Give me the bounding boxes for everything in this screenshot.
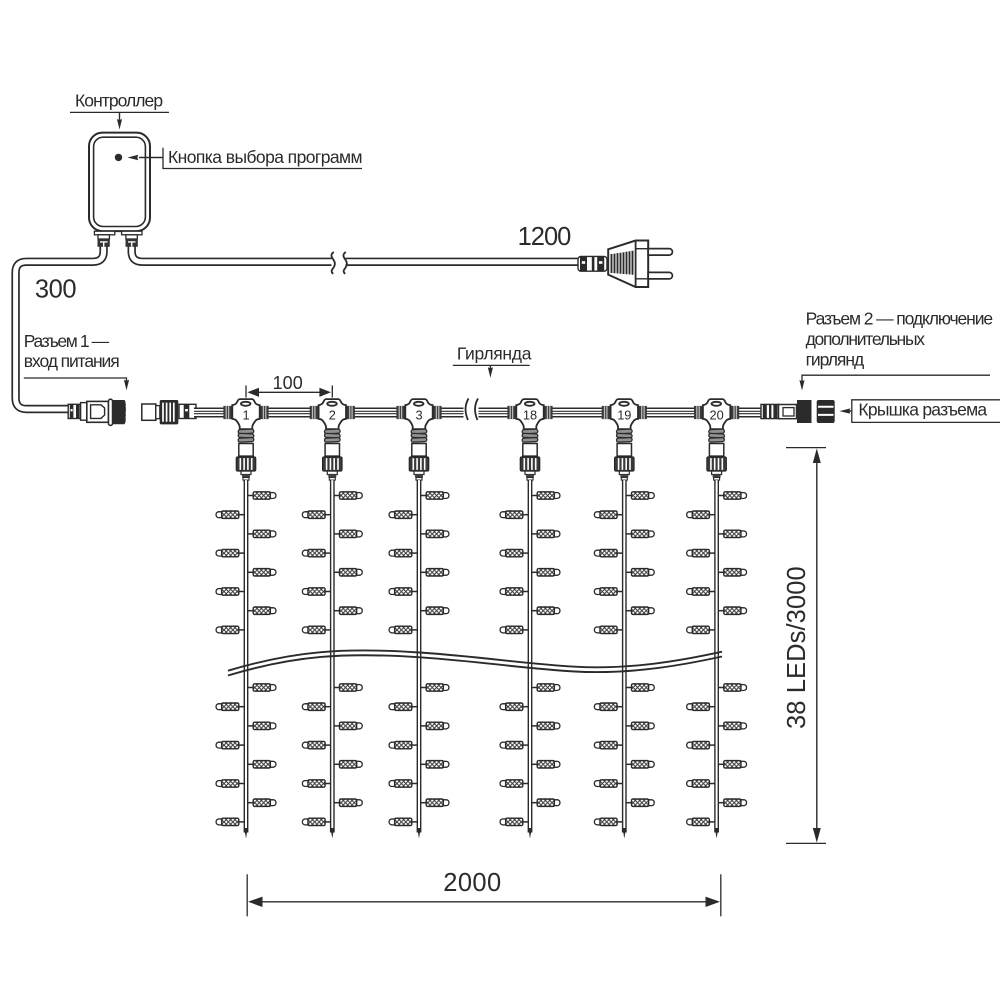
svg-text:Контроллер: Контроллер (75, 90, 162, 110)
svg-text:Гирлянда: Гирлянда (457, 344, 532, 364)
svg-text:20: 20 (709, 408, 723, 423)
svg-text:Разъем 2 — подключение: Разъем 2 — подключение (806, 308, 993, 328)
svg-text:дополнительных: дополнительных (806, 329, 926, 349)
svg-text:2000: 2000 (443, 869, 501, 897)
svg-text:38 LEDs/3000: 38 LEDs/3000 (783, 566, 811, 729)
svg-text:18: 18 (523, 408, 537, 423)
svg-text:100: 100 (273, 373, 303, 393)
svg-text:гирлянд: гирлянд (806, 349, 864, 369)
svg-text:Кнопка выбора программ: Кнопка выбора программ (168, 147, 362, 167)
svg-text:вход питания: вход питания (24, 351, 119, 371)
svg-text:1200: 1200 (518, 223, 572, 251)
svg-text:2: 2 (329, 408, 336, 423)
svg-text:Разъем 1 —: Разъем 1 — (24, 331, 110, 351)
svg-text:1: 1 (242, 408, 249, 423)
svg-text:300: 300 (35, 276, 77, 304)
svg-text:19: 19 (617, 408, 631, 423)
svg-text:3: 3 (415, 408, 422, 423)
svg-text:Крышка разъема: Крышка разъема (858, 400, 987, 420)
